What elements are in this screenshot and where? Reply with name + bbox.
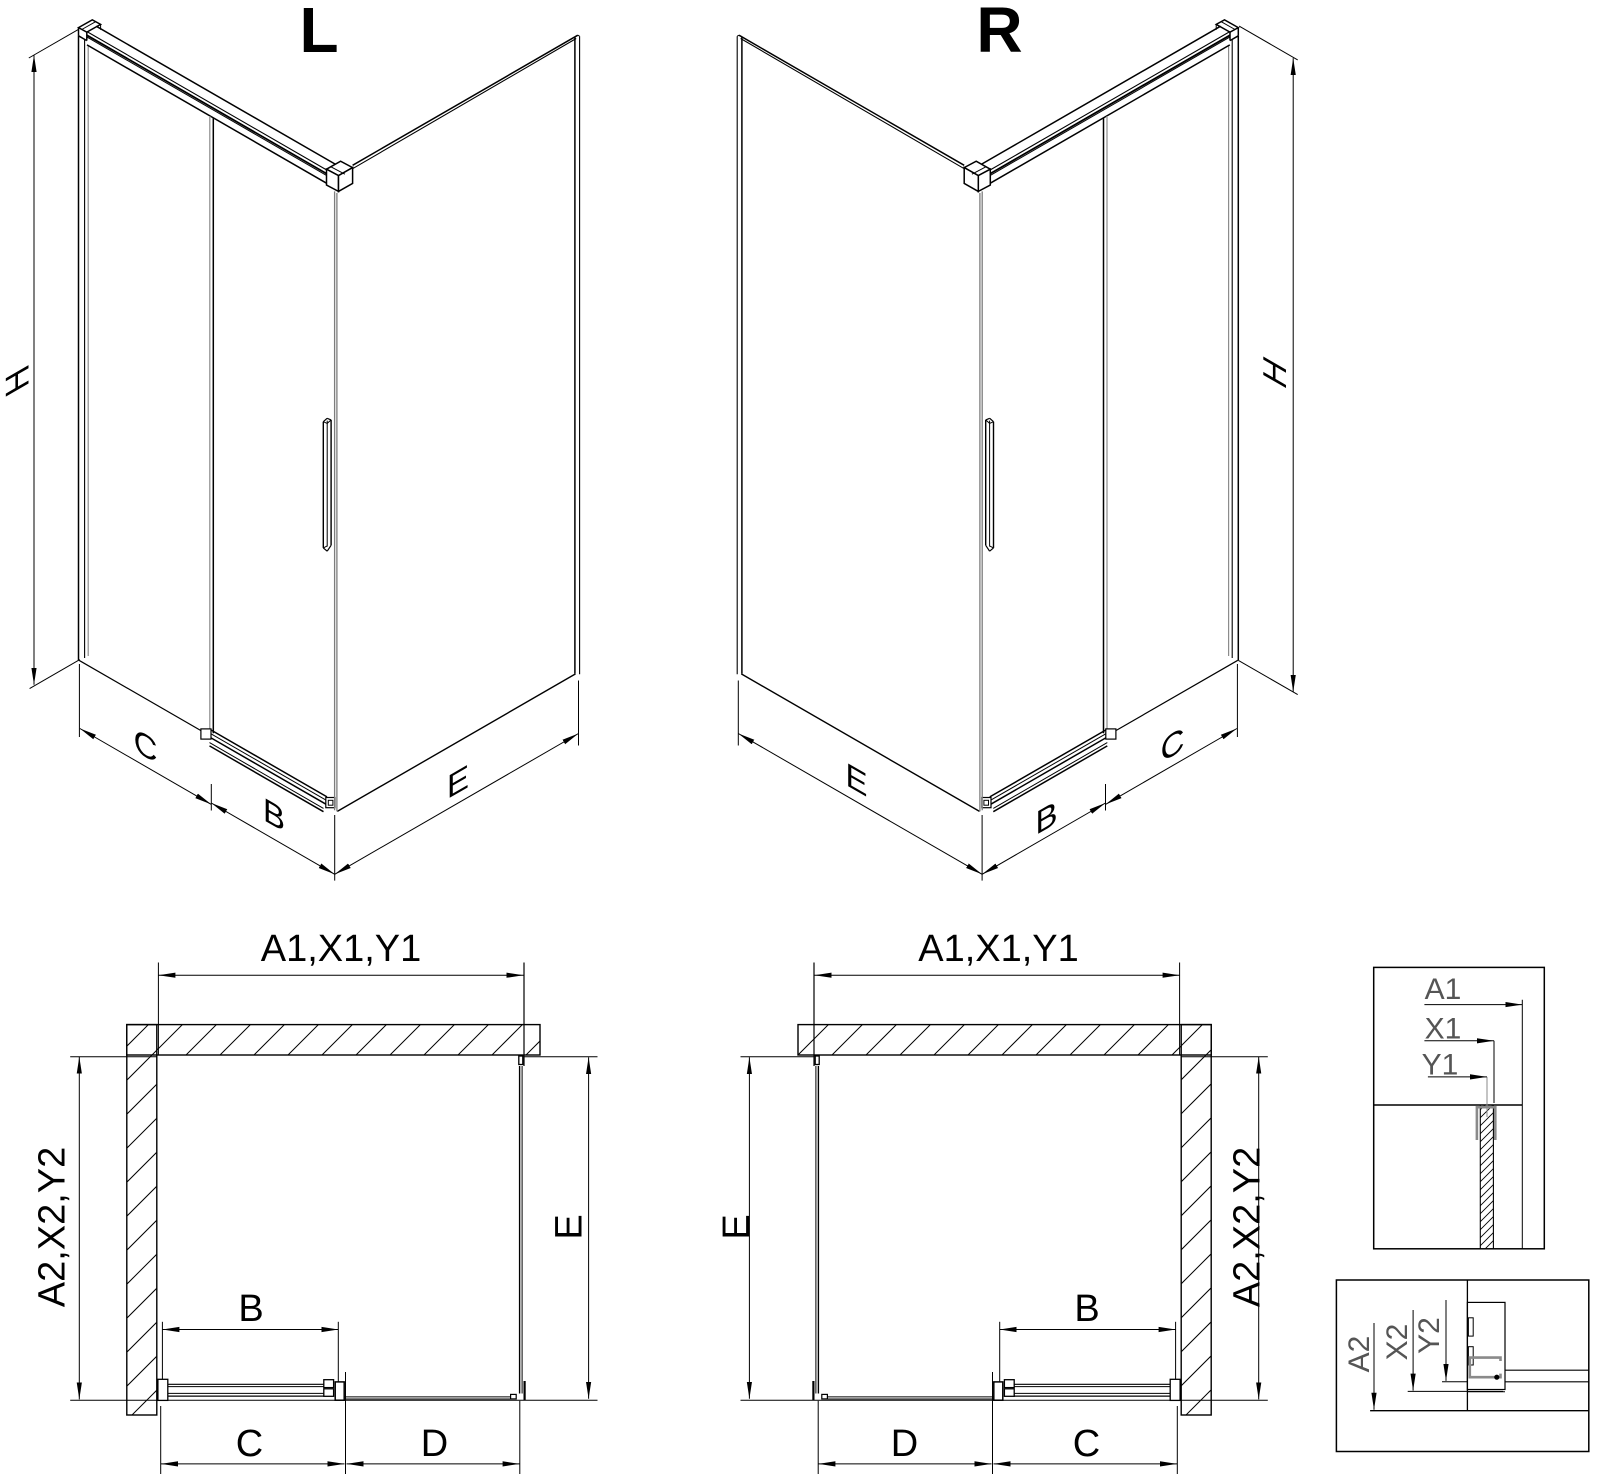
svg-text:B: B — [238, 1288, 263, 1330]
svg-text:X2: X2 — [1381, 1324, 1414, 1361]
svg-text:Y1: Y1 — [1422, 1049, 1459, 1082]
svg-text:E: E — [549, 1214, 591, 1239]
svg-text:L: L — [299, 0, 338, 66]
svg-text:B: B — [1074, 1288, 1099, 1330]
svg-text:R: R — [976, 0, 1022, 66]
svg-text:D: D — [891, 1423, 918, 1465]
svg-text:A2,X2,Y2: A2,X2,Y2 — [1227, 1147, 1269, 1308]
svg-text:Y2: Y2 — [1413, 1317, 1446, 1354]
svg-text:C: C — [1073, 1423, 1100, 1465]
svg-text:X1: X1 — [1425, 1013, 1462, 1046]
svg-text:E: E — [716, 1214, 758, 1239]
svg-text:C: C — [236, 1423, 263, 1465]
svg-text:A1,X1,Y1: A1,X1,Y1 — [918, 928, 1079, 970]
svg-text:A2,X2,Y2: A2,X2,Y2 — [32, 1147, 74, 1308]
svg-text:A1: A1 — [1425, 973, 1462, 1006]
svg-text:A2: A2 — [1343, 1336, 1376, 1373]
svg-text:A1,X1,Y1: A1,X1,Y1 — [261, 928, 422, 970]
svg-text:D: D — [421, 1423, 448, 1465]
